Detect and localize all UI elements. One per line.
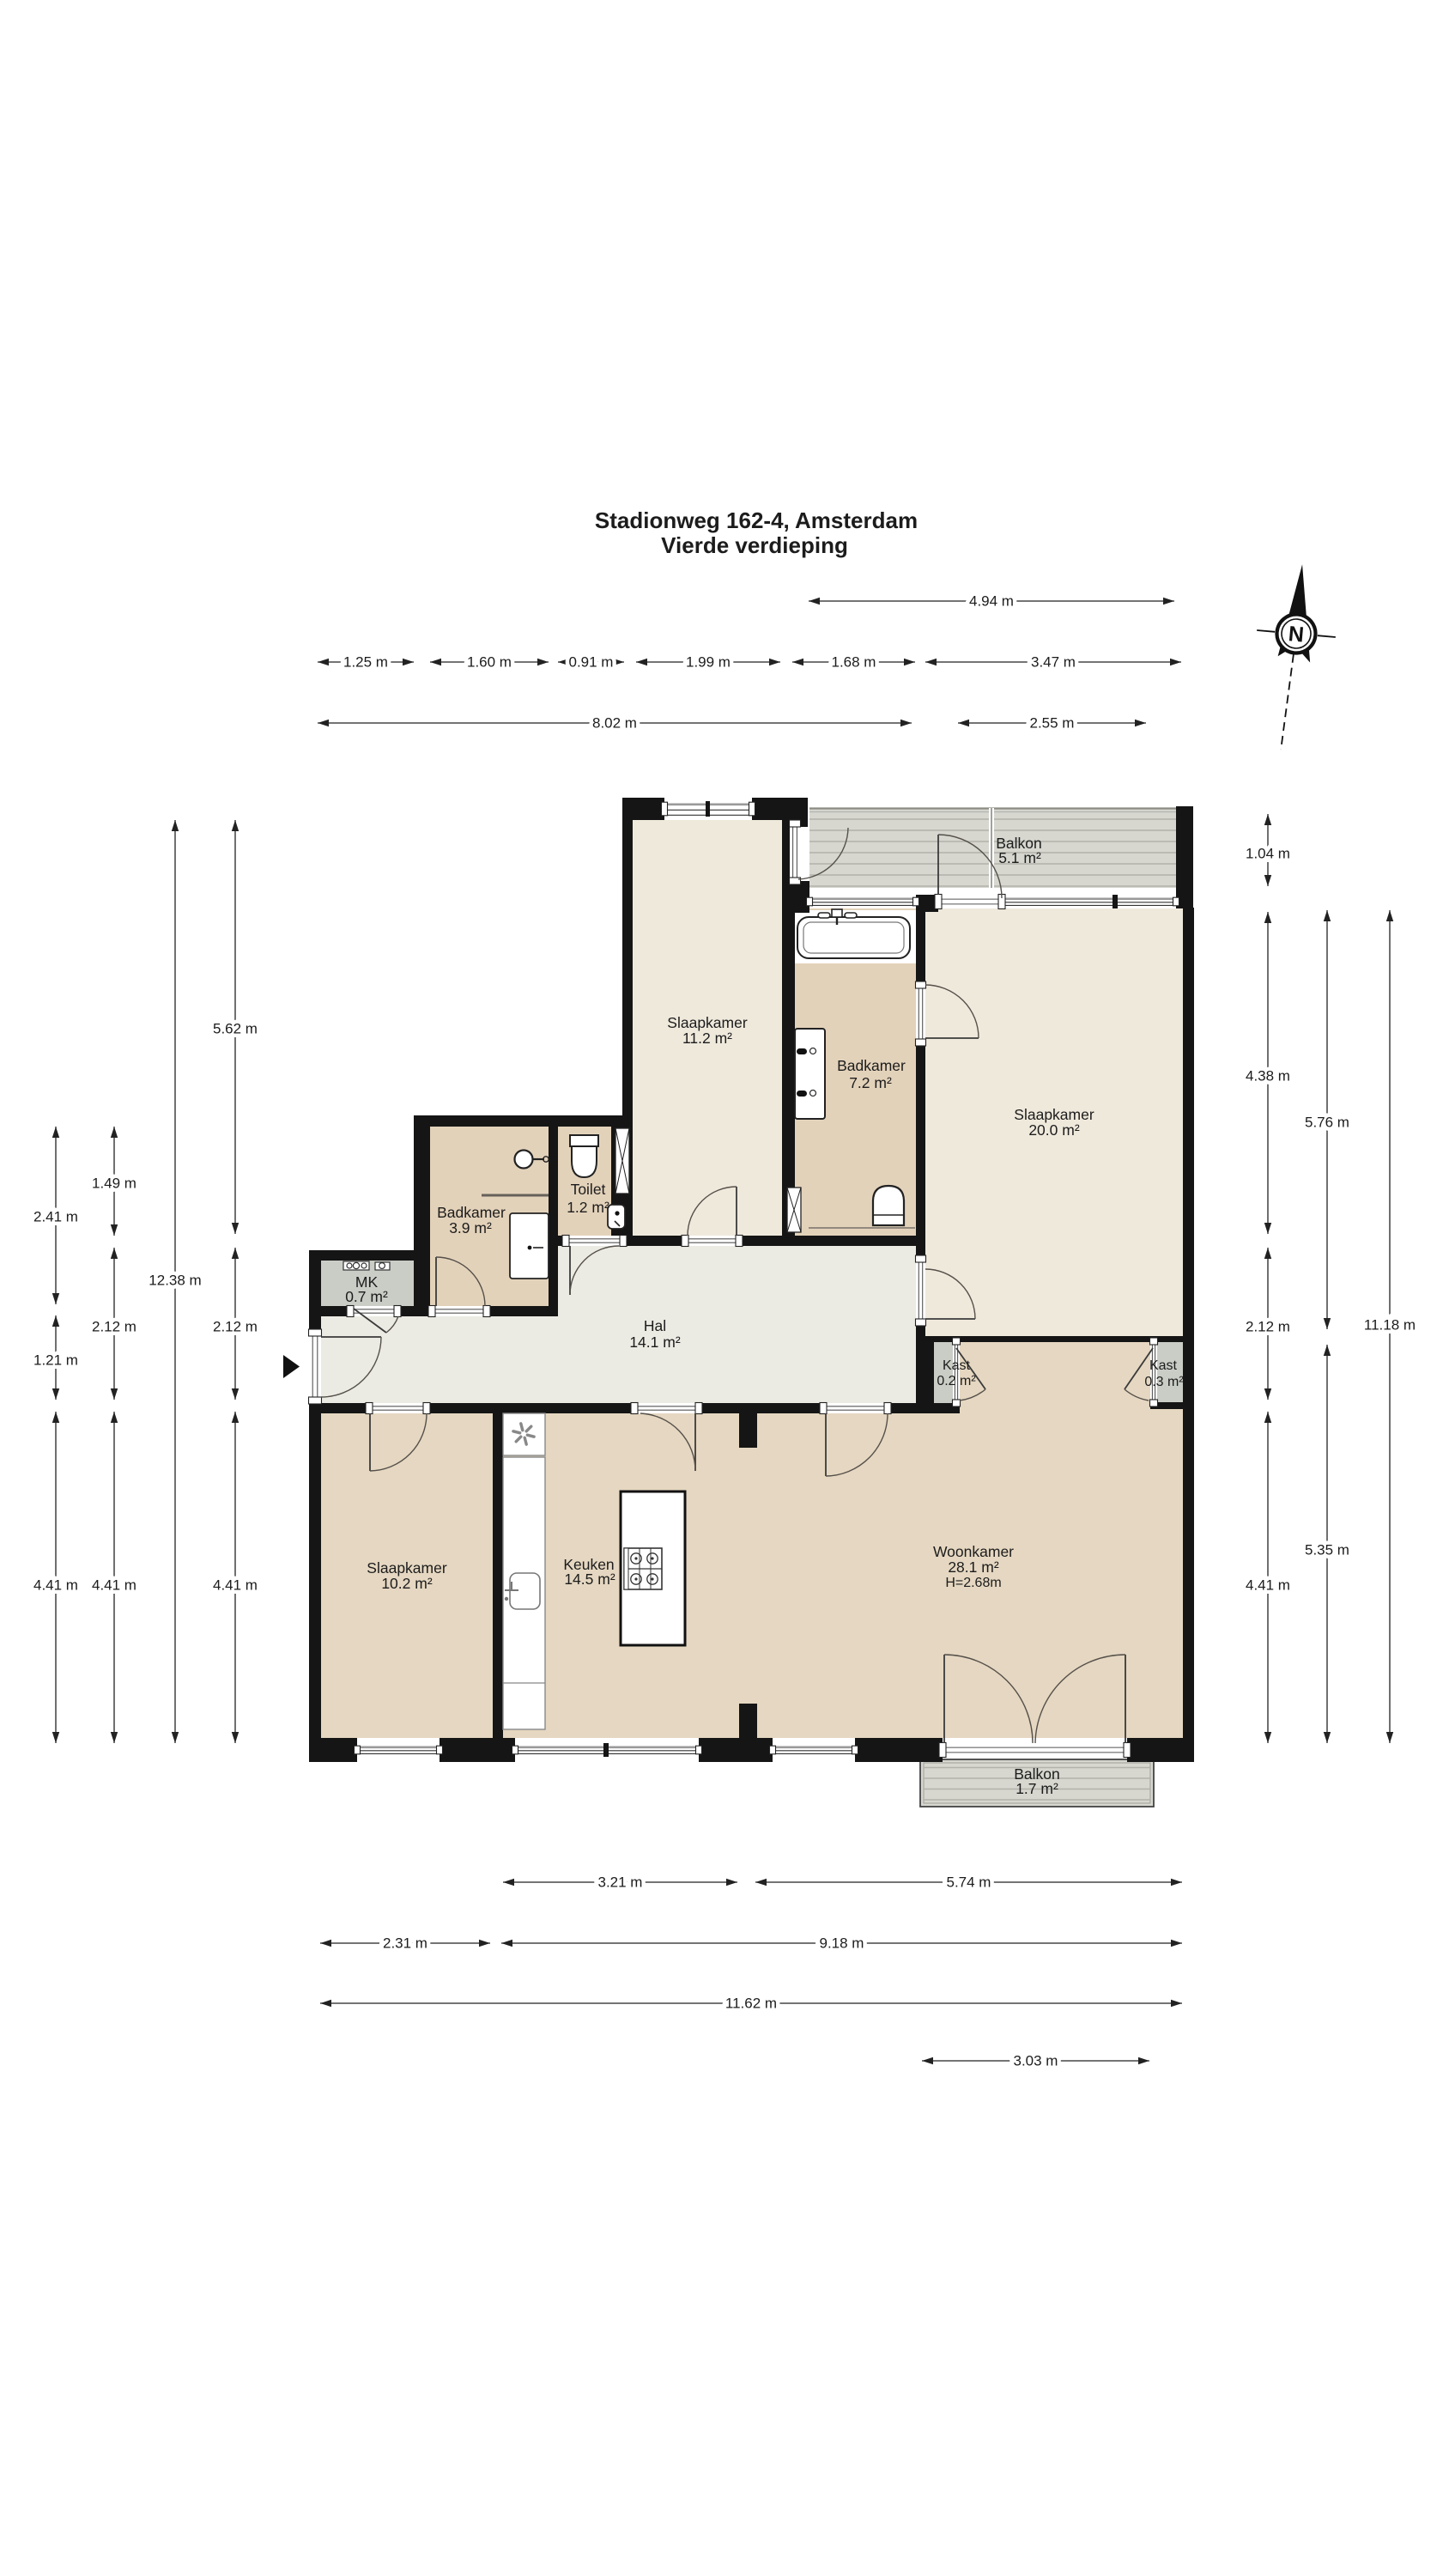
svg-text:1.21 m: 1.21 m <box>33 1352 78 1369</box>
svg-text:5.74 m: 5.74 m <box>947 1874 991 1891</box>
svg-text:2.41 m: 2.41 m <box>33 1209 78 1225</box>
svg-text:1.60 m: 1.60 m <box>467 654 512 671</box>
svg-text:1.25 m: 1.25 m <box>343 654 388 671</box>
svg-text:3.47 m: 3.47 m <box>1031 654 1076 671</box>
svg-text:0.3 m²: 0.3 m² <box>1144 1375 1184 1389</box>
svg-text:11.62 m: 11.62 m <box>725 1996 777 2012</box>
svg-text:4.41 m: 4.41 m <box>1246 1577 1290 1594</box>
svg-text:11.2 m²: 11.2 m² <box>682 1030 732 1047</box>
svg-text:5.35 m: 5.35 m <box>1305 1542 1349 1558</box>
svg-text:2.12 m: 2.12 m <box>1246 1319 1290 1335</box>
svg-text:14.5 m²: 14.5 m² <box>564 1571 615 1588</box>
svg-text:8.02 m: 8.02 m <box>592 715 637 732</box>
svg-text:4.38 m: 4.38 m <box>1246 1068 1290 1084</box>
svg-text:20.0 m²: 20.0 m² <box>1028 1121 1079 1139</box>
svg-text:1.99 m: 1.99 m <box>686 654 731 671</box>
svg-text:Hal: Hal <box>644 1317 666 1334</box>
svg-text:10.2 m²: 10.2 m² <box>381 1575 432 1592</box>
svg-text:Toilet: Toilet <box>571 1181 606 1198</box>
svg-text:2.31 m: 2.31 m <box>383 1935 427 1952</box>
svg-text:14.1 m²: 14.1 m² <box>629 1334 680 1351</box>
svg-text:1.04 m: 1.04 m <box>1246 846 1290 862</box>
svg-text:5.76 m: 5.76 m <box>1305 1115 1349 1131</box>
svg-text:Stadionweg 162-4, Amsterdam: Stadionweg 162-4, Amsterdam <box>595 507 918 533</box>
svg-text:7.2 m²: 7.2 m² <box>849 1074 892 1091</box>
svg-text:Badkamer: Badkamer <box>837 1057 906 1074</box>
svg-text:1.2 m²: 1.2 m² <box>567 1199 609 1216</box>
svg-text:Slaapkamer: Slaapkamer <box>667 1014 748 1031</box>
svg-text:11.18 m: 11.18 m <box>1364 1317 1416 1334</box>
svg-text:0.7 m²: 0.7 m² <box>345 1288 388 1305</box>
svg-text:28.1 m²: 28.1 m² <box>948 1558 998 1576</box>
svg-text:9.18 m: 9.18 m <box>820 1935 864 1952</box>
svg-text:4.94 m: 4.94 m <box>969 593 1014 610</box>
svg-text:Slaapkamer: Slaapkamer <box>367 1559 447 1577</box>
svg-text:0.91 m: 0.91 m <box>569 654 614 671</box>
svg-text:Woonkamer: Woonkamer <box>933 1543 1014 1560</box>
svg-text:12.38 m: 12.38 m <box>149 1273 201 1289</box>
svg-text:Kast: Kast <box>943 1358 971 1373</box>
svg-text:1.7 m²: 1.7 m² <box>1016 1780 1058 1797</box>
svg-text:4.41 m: 4.41 m <box>33 1577 78 1594</box>
svg-text:4.41 m: 4.41 m <box>213 1577 258 1594</box>
svg-text:Kast: Kast <box>1149 1358 1178 1373</box>
svg-text:1.49 m: 1.49 m <box>92 1176 136 1192</box>
svg-text:3.03 m: 3.03 m <box>1014 2053 1058 2069</box>
svg-text:0.2 m²: 0.2 m² <box>937 1374 976 1388</box>
svg-text:N: N <box>1288 622 1305 647</box>
svg-text:3.21 m: 3.21 m <box>598 1874 643 1891</box>
svg-text:5.1 m²: 5.1 m² <box>998 849 1041 866</box>
svg-text:1.68 m: 1.68 m <box>832 654 876 671</box>
svg-text:2.55 m: 2.55 m <box>1030 715 1075 732</box>
svg-text:2.12 m: 2.12 m <box>92 1319 136 1335</box>
svg-text:H=2.68m: H=2.68m <box>945 1576 1001 1590</box>
svg-text:4.41 m: 4.41 m <box>92 1577 136 1594</box>
svg-text:3.9 m²: 3.9 m² <box>449 1219 492 1236</box>
svg-text:Vierde verdieping: Vierde verdieping <box>661 532 848 558</box>
svg-text:Badkamer: Badkamer <box>437 1204 506 1221</box>
svg-text:Slaapkamer: Slaapkamer <box>1014 1106 1094 1123</box>
svg-text:2.12 m: 2.12 m <box>213 1319 258 1335</box>
svg-text:5.62 m: 5.62 m <box>213 1021 258 1037</box>
